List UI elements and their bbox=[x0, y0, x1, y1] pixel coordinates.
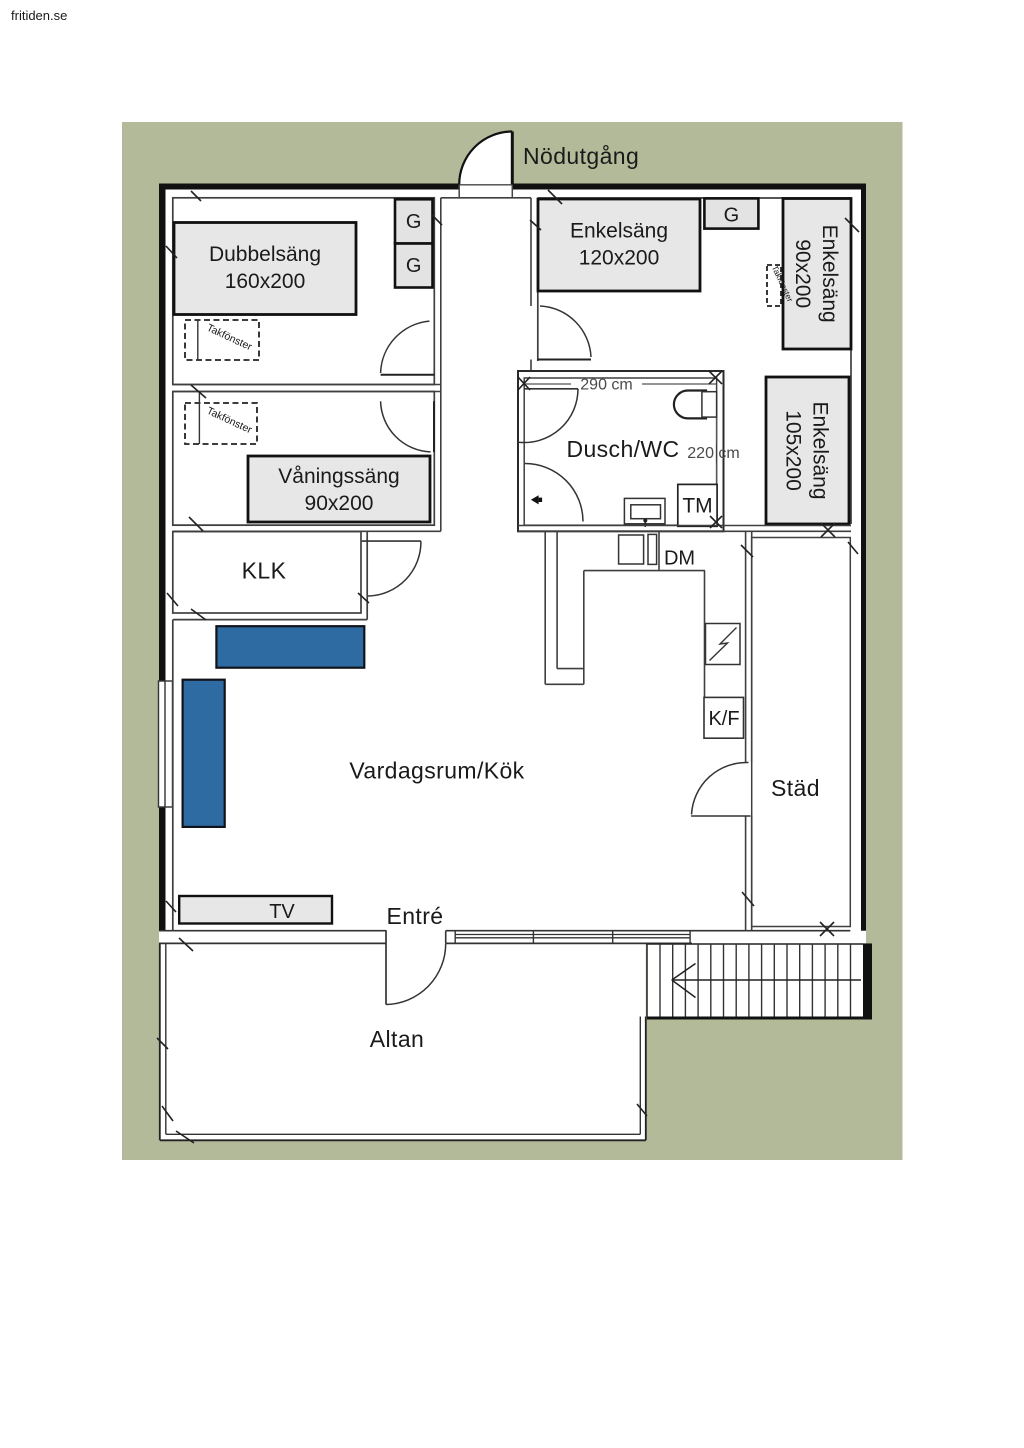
svg-text:Altan: Altan bbox=[370, 1026, 424, 1052]
svg-text:G: G bbox=[724, 205, 740, 227]
svg-text:290 cm: 290 cm bbox=[580, 377, 632, 394]
svg-text:TM: TM bbox=[682, 495, 712, 518]
svg-text:Enkelsäng: Enkelsäng bbox=[570, 220, 668, 243]
svg-text:160x200: 160x200 bbox=[225, 270, 306, 293]
svg-text:Dubbelsäng: Dubbelsäng bbox=[209, 243, 321, 266]
svg-text:K/F: K/F bbox=[708, 708, 739, 730]
svg-text:TV: TV bbox=[269, 901, 295, 923]
svg-text:Enkelsäng: Enkelsäng bbox=[809, 401, 832, 499]
svg-text:220 cm: 220 cm bbox=[687, 445, 739, 462]
svg-text:fritiden.se: fritiden.se bbox=[11, 8, 67, 23]
svg-text:120x200: 120x200 bbox=[579, 247, 660, 270]
svg-text:105x200: 105x200 bbox=[782, 410, 805, 491]
svg-text:Enkelsäng: Enkelsäng bbox=[818, 225, 841, 323]
svg-text:90x200: 90x200 bbox=[305, 492, 374, 515]
svg-text:Dusch/WC: Dusch/WC bbox=[566, 436, 679, 462]
svg-text:G: G bbox=[406, 255, 422, 277]
svg-text:KLK: KLK bbox=[242, 558, 287, 584]
svg-text:Entré: Entré bbox=[387, 903, 444, 929]
svg-text:Våningssäng: Våningssäng bbox=[278, 465, 399, 488]
svg-text:Nödutgång: Nödutgång bbox=[523, 143, 639, 169]
svg-text:Vardagsrum/Kök: Vardagsrum/Kök bbox=[349, 758, 524, 784]
svg-text:DM: DM bbox=[664, 548, 695, 570]
svg-text:G: G bbox=[406, 211, 422, 233]
svg-text:Städ: Städ bbox=[771, 775, 820, 801]
